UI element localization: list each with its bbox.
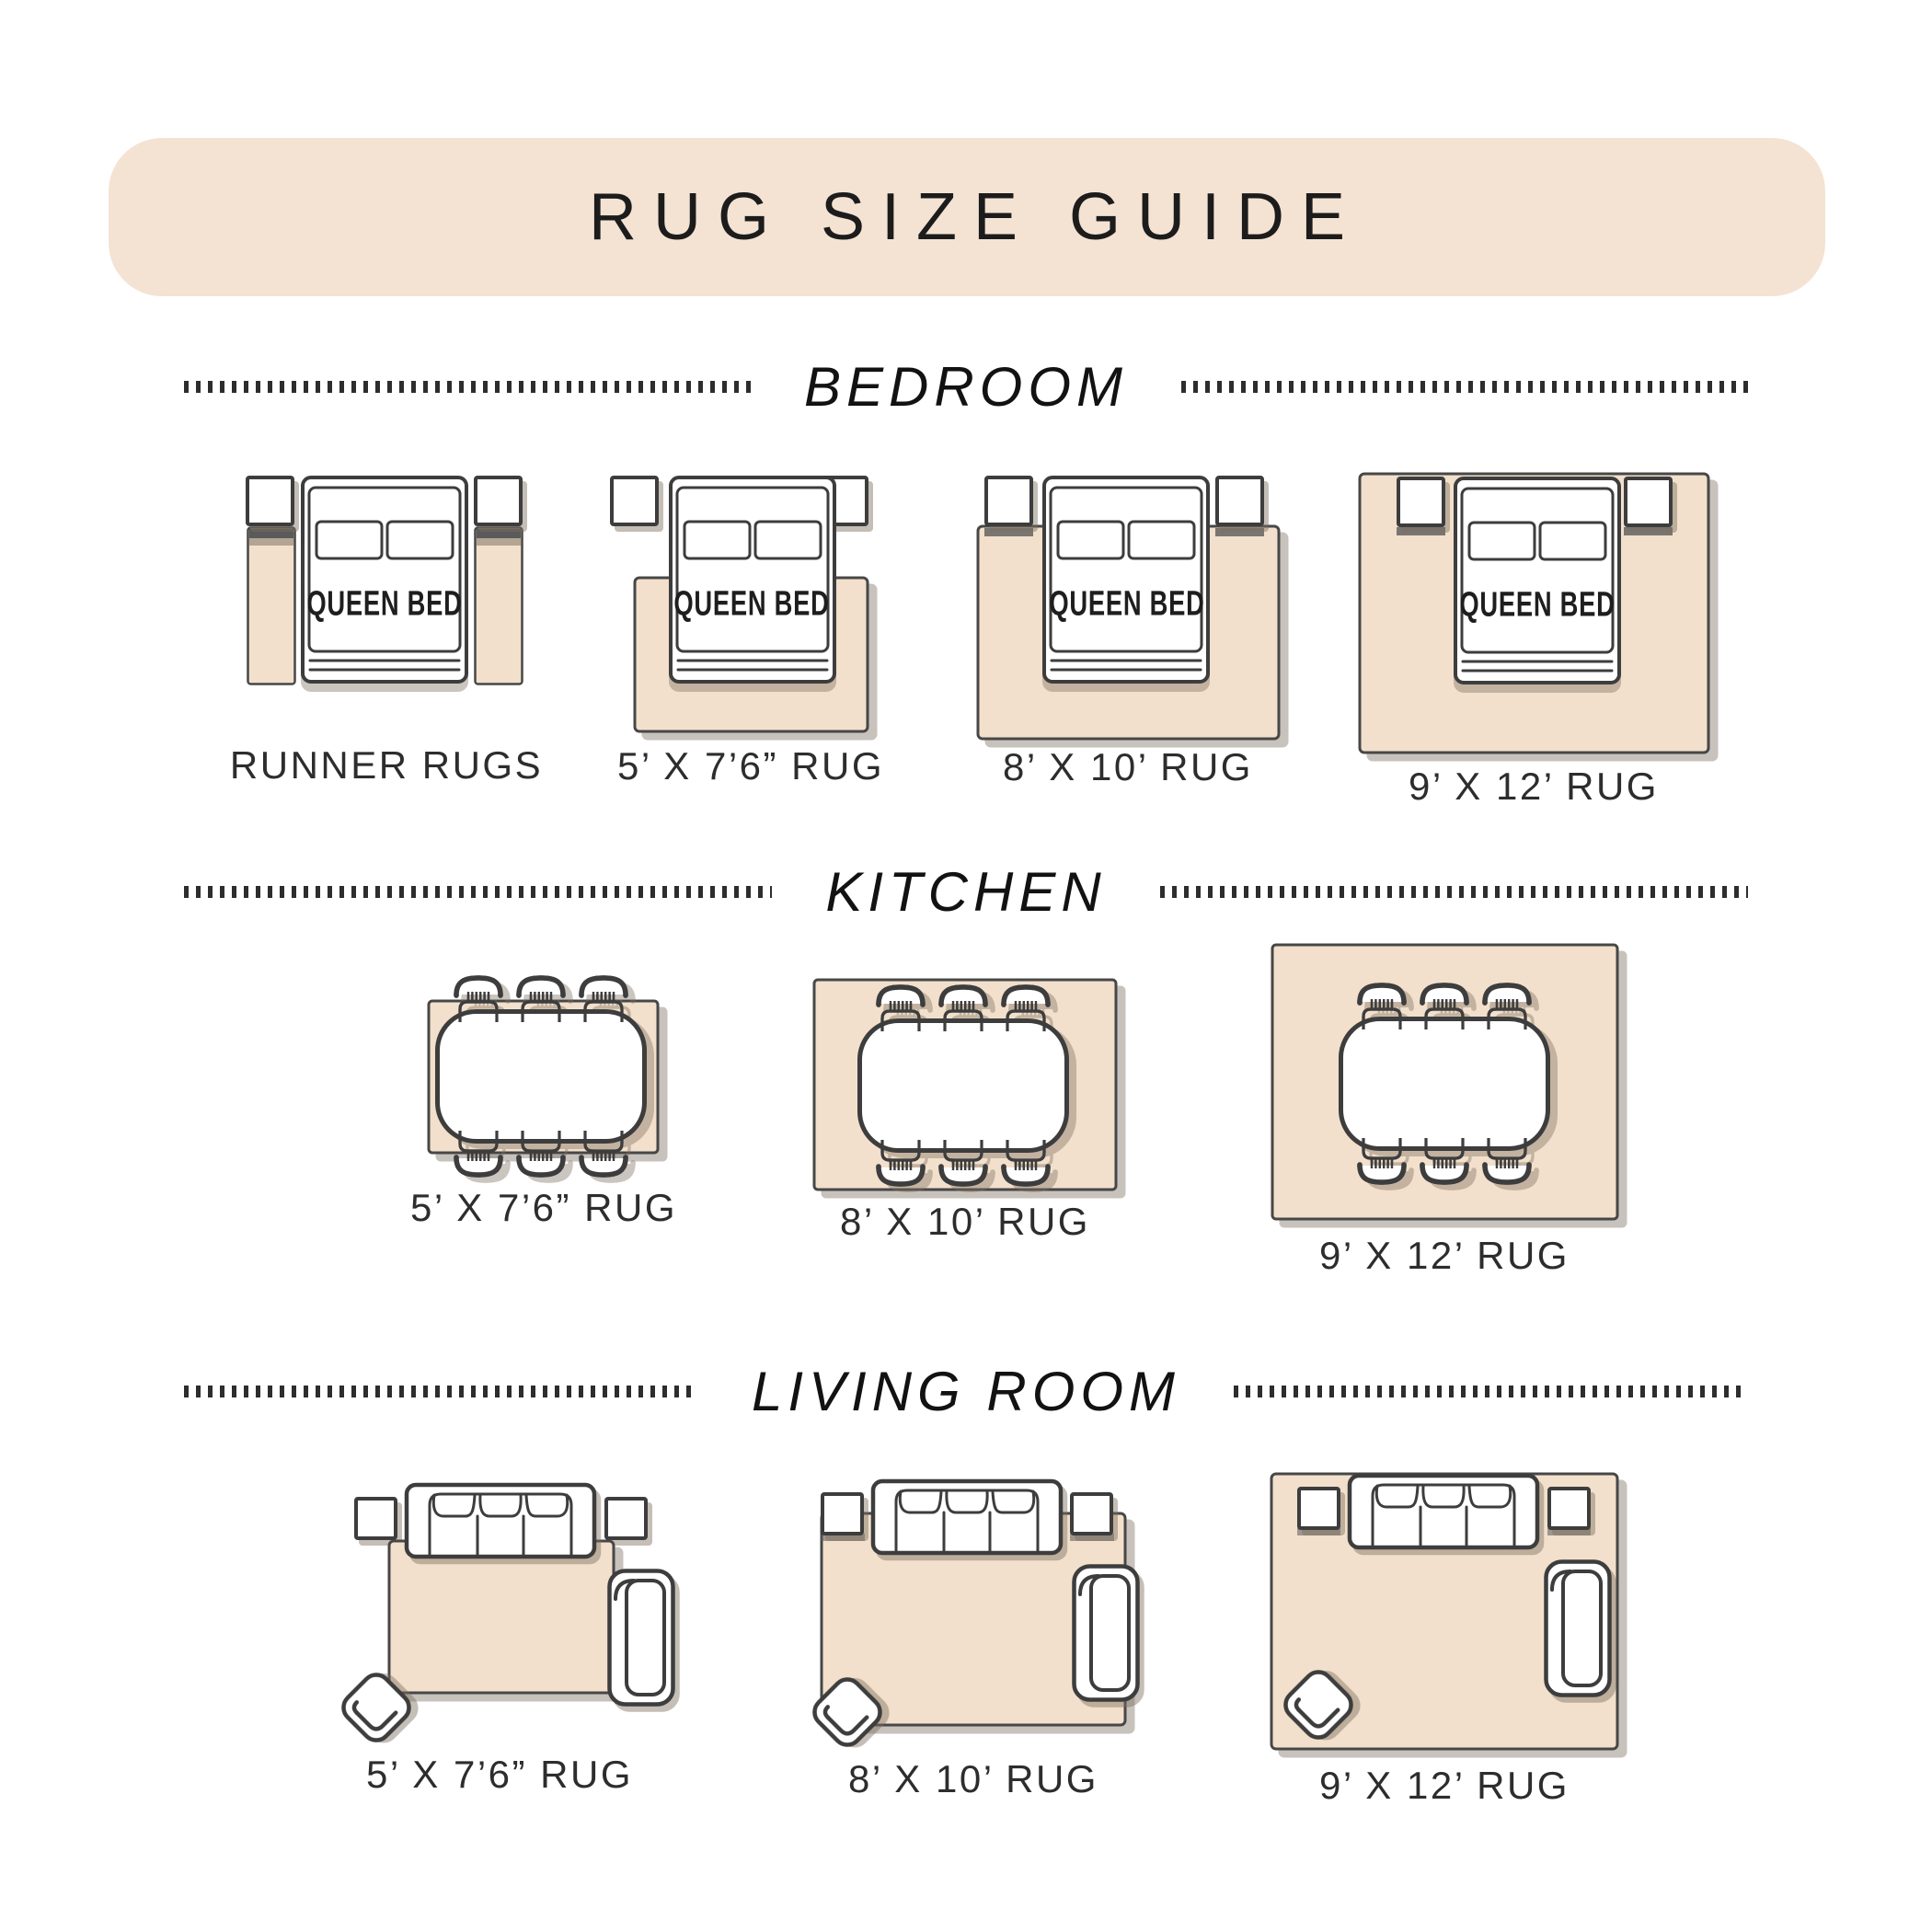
kitchen-9x12-diagram [1272,945,1617,1219]
label-living-5x76: 5’ X 7’6” RUG [366,1753,633,1797]
dotted-divider-right [1160,886,1748,898]
side-table-icon [356,1499,396,1538]
queen-bed-icon [303,477,466,682]
section-header-living-room: LIVING ROOM [184,1363,1748,1419]
kitchen-8x10-diagram [814,980,1116,1190]
queen-bed-text: QUEEN BED [1459,586,1615,626]
page-title: RUG SIZE GUIDE [572,179,1362,255]
label-kitchen-5x76: 5’ X 7’6” RUG [410,1186,677,1230]
dotted-divider-left [184,381,751,393]
side-table-icon [822,1494,862,1534]
section-title-living-room: LIVING ROOM [752,1360,1180,1423]
nightstand-icon [1626,478,1671,525]
queen-bed-text: QUEEN BED [673,585,829,625]
living-9x12-diagram [1271,1474,1617,1749]
queen-bed-icon [671,477,834,682]
section-header-bedroom: BEDROOM [184,359,1748,414]
queen-bed-icon [1044,477,1208,682]
label-kitchen-8x10: 8’ X 10’ RUG [840,1200,1090,1244]
nightstand-shadow [984,528,1033,536]
nightstand-icon [1398,478,1443,525]
side-table-icon [1072,1494,1111,1534]
label-bedroom-9x12: 9’ X 12’ RUG [1409,765,1659,809]
rug-size-guide-infographic: RUG SIZE GUIDE BEDROOM KITCHEN LIVING RO… [0,0,1932,1932]
nightstand-icon [986,477,1031,524]
nightstand-shadow [1397,527,1445,535]
label-bedroom-8x10: 8’ X 10’ RUG [1003,745,1253,789]
nightstand-icon [476,477,521,524]
nightstand-icon [247,477,293,524]
side-table-icon [1299,1489,1339,1528]
runner-rug-right [476,528,523,684]
nightstand-icon [1217,477,1262,524]
side-table-icon [1549,1489,1589,1528]
living-8x10-diagram [809,1481,1137,1751]
runner-rug-left [248,528,295,684]
dotted-divider-right [1234,1386,1748,1397]
label-bedroom-runner-rugs: RUNNER RUGS [230,743,543,788]
rug-shape [389,1541,614,1693]
section-header-kitchen: KITCHEN [184,864,1748,919]
armchair-icon [1547,1562,1610,1696]
queen-bed-text: QUEEN BED [306,585,462,625]
queen-bed-text: QUEEN BED [1049,585,1204,625]
nightstand-shadow [1624,527,1673,535]
armchair-icon [1075,1567,1138,1700]
armchair-icon [610,1571,673,1705]
dotted-divider-left [184,1386,698,1397]
section-title-bedroom: BEDROOM [804,355,1128,419]
label-bedroom-5x76: 5’ X 7’6” RUG [617,744,884,788]
section-title-kitchen: KITCHEN [825,860,1106,924]
kitchen-5x76-diagram [429,978,658,1175]
dotted-divider-left [184,886,772,898]
label-kitchen-9x12: 9’ X 12’ RUG [1319,1234,1570,1278]
sofa-icon [407,1485,594,1557]
nightstand-icon [612,477,657,524]
sofa-icon [873,1481,1061,1553]
queen-bed-icon [1455,478,1619,683]
sofa-icon [1350,1476,1537,1547]
label-living-8x10: 8’ X 10’ RUG [848,1757,1098,1801]
nightstand-shadow [1215,528,1264,536]
dotted-divider-right [1181,381,1748,393]
bedroom-runner-rugs-diagram [247,477,523,684]
side-table-icon [606,1499,646,1538]
living-5x76-diagram [338,1485,673,1746]
header-banner: RUG SIZE GUIDE [109,138,1825,296]
label-living-9x12: 9’ X 12’ RUG [1319,1764,1570,1808]
